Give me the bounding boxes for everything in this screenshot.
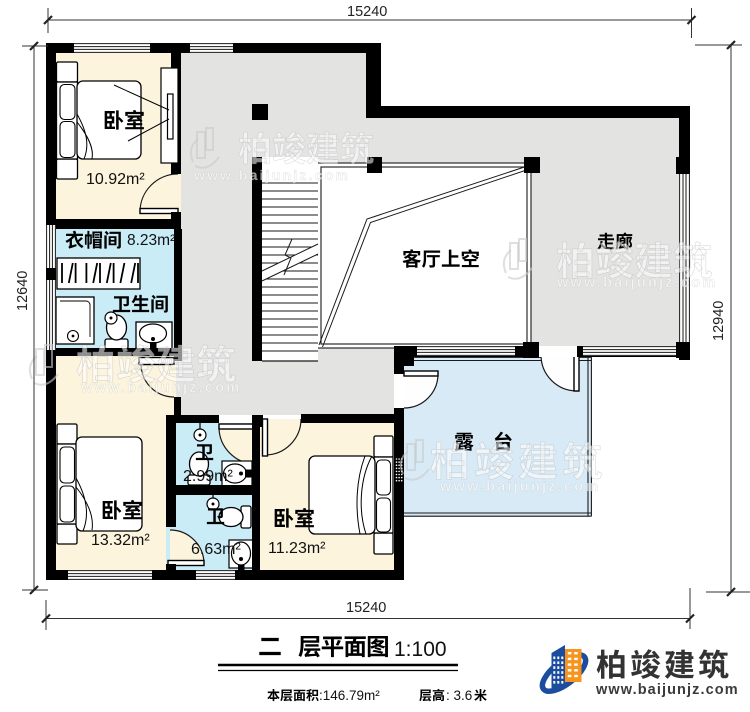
svg-text:1:100: 1:100 <box>394 638 447 661</box>
svg-text:10.92m²: 10.92m² <box>86 171 145 188</box>
svg-text:13.32m²: 13.32m² <box>91 532 150 549</box>
svg-text:15240: 15240 <box>347 4 387 20</box>
svg-text:www.baijunjz.com: www.baijunjz.com <box>80 380 241 396</box>
svg-text:www.baijunjz.com: www.baijunjz.com <box>556 275 717 291</box>
svg-text:2.99m²: 2.99m² <box>183 468 233 485</box>
svg-text:8.23m²: 8.23m² <box>127 232 175 249</box>
svg-text:www.baijunjz.com: www.baijunjz.com <box>439 479 600 495</box>
svg-text:: 3.6: : 3.6 <box>446 688 472 703</box>
svg-text:www.baijunjz.com: www.baijunjz.com <box>595 682 739 698</box>
svg-text:15240: 15240 <box>346 600 386 616</box>
svg-text::146.79m²: :146.79m² <box>319 688 380 703</box>
svg-text:12940: 12940 <box>711 301 727 341</box>
svg-text:6.63m²: 6.63m² <box>191 541 241 558</box>
svg-text:www.baijunjz.com: www.baijunjz.com <box>193 167 350 183</box>
svg-text:12640: 12640 <box>15 271 31 311</box>
svg-text:11.23m²: 11.23m² <box>268 540 326 557</box>
